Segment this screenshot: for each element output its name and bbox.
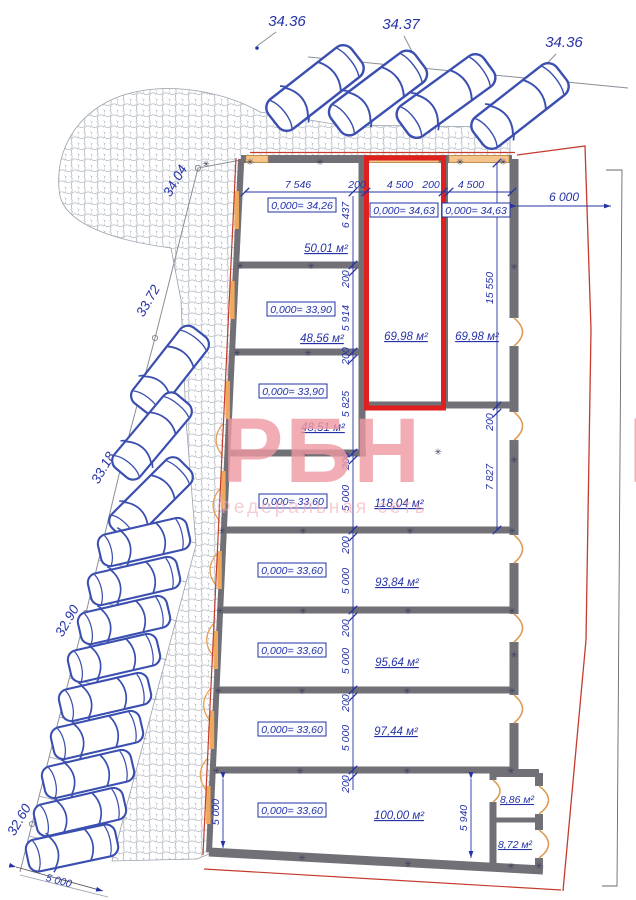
unit-level-label: 0,000= 33,60: [261, 565, 323, 577]
unit-area-label: 100,00 м²: [374, 810, 425, 822]
dim-label: 5 000: [45, 872, 74, 890]
dim-label: 6 000: [549, 190, 579, 204]
dim-label: 5 000: [340, 725, 352, 751]
dim-label: 7 546: [285, 179, 311, 191]
dim-label: 200: [484, 413, 496, 432]
unit-area-label: 48,56 м²: [300, 333, 345, 345]
elevation-label: 33.72: [133, 282, 163, 319]
unit-level-label: 0,000= 33,90: [262, 386, 324, 398]
dim-label: 200: [421, 179, 440, 191]
unit-area-label: 8,86 м²: [500, 794, 535, 806]
leader-line: [257, 32, 276, 46]
unit-area-label: 95,64 м²: [375, 657, 420, 669]
unit-level-label: 0,000= 33,60: [261, 645, 323, 657]
dim-label: 200: [347, 179, 366, 191]
dim-label: 5 914: [340, 305, 352, 331]
dim-label: 200: [340, 347, 352, 366]
dim-label: 5 000: [340, 648, 352, 674]
elevation-label: 34.37: [382, 16, 420, 33]
watermark: РБН Р Федеральная сеть: [216, 400, 636, 518]
dim-label: 4 500: [387, 179, 413, 191]
site-boundary: [203, 146, 622, 891]
unit-level-label: 0,000= 34,26: [271, 200, 333, 212]
elevation-label: 34.36: [545, 34, 583, 51]
dim-label: 5 000: [340, 568, 352, 594]
dim-label: 5 940: [458, 805, 470, 831]
dim-label: 200: [340, 694, 352, 713]
watermark-text: РБН: [222, 400, 422, 502]
dim-label: 6 437: [340, 201, 352, 228]
unit-area-label: 69,98 м²: [384, 331, 429, 343]
unit-level-label: 0,000= 33,90: [270, 304, 332, 316]
dim-label: 5 000: [210, 799, 222, 825]
dim-label: 200: [340, 270, 352, 289]
unit-level-label: 0,000= 34,63: [373, 205, 435, 217]
elevation-label: 34.36: [268, 13, 306, 30]
dim-label: 7 827: [484, 463, 496, 490]
watermark-subtext: Федеральная сеть: [216, 497, 427, 518]
dim-label: 200: [340, 536, 352, 555]
unit-area-label: 69,98 м²: [455, 331, 500, 343]
watermark-edge-text: Р: [628, 400, 636, 502]
dim-label: 4 500: [458, 179, 484, 191]
dim-label: 200: [340, 775, 352, 794]
unit-area-label: 97,44 м²: [374, 726, 419, 738]
highlighted-unit-outline: [367, 158, 444, 408]
unit-area-label: 93,84 м²: [375, 577, 420, 589]
unit-level-label: 0,000= 34,63: [445, 205, 507, 217]
site-plan-drawing: ✳ 34.36 34.37 34.36: [0, 0, 636, 900]
survey-point: [255, 46, 259, 50]
fence-line: [602, 170, 622, 886]
unit-level-label: 0,000= 33,60: [261, 805, 323, 817]
unit-area-label: 8,72 м²: [498, 839, 533, 851]
unit-area-label: 50,01 м²: [304, 243, 349, 255]
dim-label: 15 550: [484, 272, 496, 304]
unit-level-label: 0,000= 33,60: [261, 724, 323, 736]
dim-label: 200: [340, 619, 352, 638]
